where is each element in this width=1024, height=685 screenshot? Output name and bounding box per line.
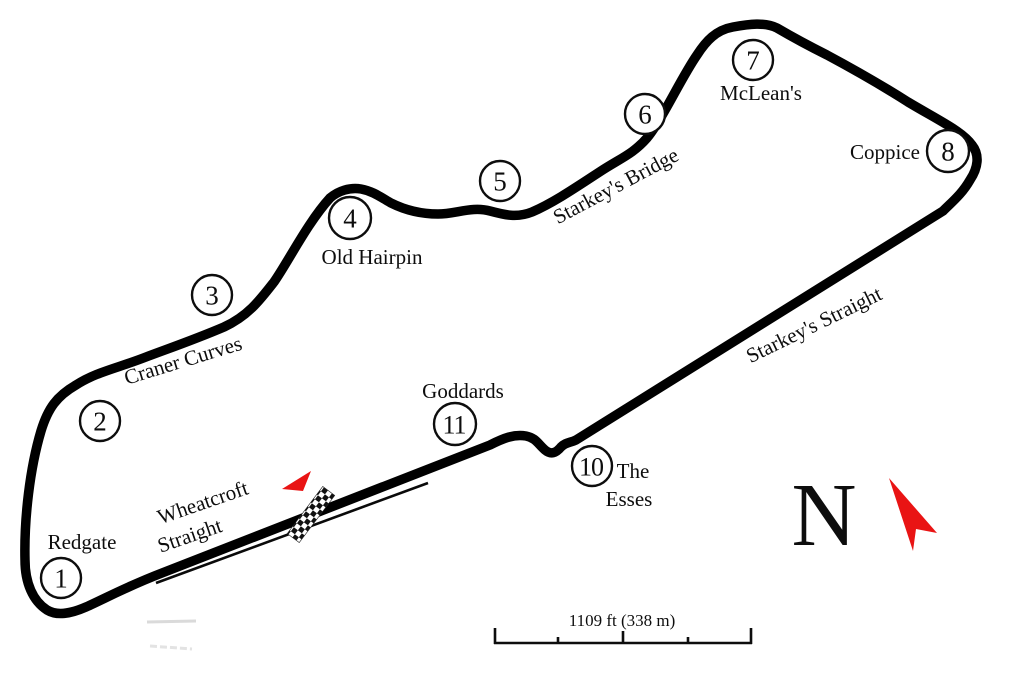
corner-number: 3 (205, 281, 219, 311)
corner-number: 7 (746, 46, 760, 76)
north-arrow-icon (889, 478, 937, 551)
corner-number: 11 (442, 411, 465, 440)
finish-line-checkered (287, 486, 334, 542)
corner-marker-10: 10 (572, 446, 612, 486)
corner-marker-4: 4 (329, 197, 371, 239)
label-mcleans: McLean's (720, 81, 802, 105)
corner-marker-6: 6 (625, 94, 665, 134)
corner-marker-7: 7 (733, 40, 773, 80)
corner-marker-5: 5 (480, 161, 520, 201)
scale-label: 1109 ft (338 m) (569, 611, 676, 630)
circuit-map: 1 2 3 4 5 6 7 8 (0, 0, 1024, 685)
corner-number: 8 (941, 137, 955, 167)
label-old-hairpin: Old Hairpin (322, 245, 423, 269)
corner-number: 5 (493, 167, 507, 197)
corner-marker-1: 1 (41, 558, 81, 598)
corner-marker-8: 8 (927, 130, 969, 172)
label-goddards: Goddards (422, 379, 504, 403)
corner-labels: Redgate Craner Curves Old Hairpin Starke… (48, 81, 920, 558)
corner-number: 2 (93, 407, 107, 437)
corner-marker-2: 2 (80, 401, 120, 441)
corner-number: 6 (638, 100, 652, 130)
label-starkeys-bridge: Starkey's Bridge (549, 143, 683, 229)
print-artifacts (147, 621, 196, 649)
scale-bar (494, 628, 752, 644)
corner-marker-11: 11 (434, 403, 476, 445)
label-the-esses-line1: The (617, 459, 650, 483)
label-coppice: Coppice (850, 140, 920, 164)
label-the-esses-line2: Esses (606, 487, 653, 511)
north-label: N (792, 466, 857, 565)
finish-flag-icon (282, 471, 311, 491)
label-redgate: Redgate (48, 530, 117, 554)
corner-number: 4 (343, 204, 357, 234)
corner-marker-3: 3 (192, 275, 232, 315)
corner-number: 1 (54, 564, 68, 594)
corner-number: 10 (579, 453, 604, 482)
compass: N (792, 466, 938, 565)
